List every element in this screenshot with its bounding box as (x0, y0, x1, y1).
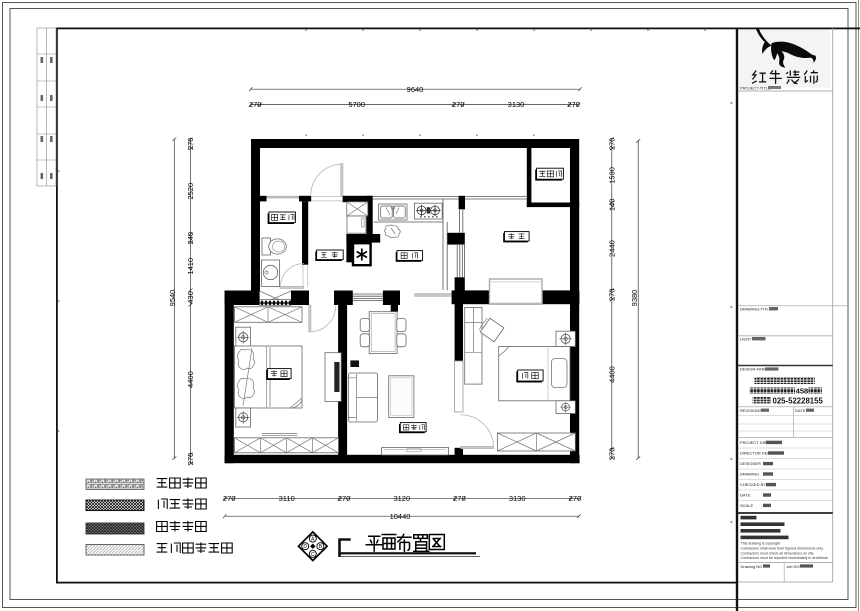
svg-text:This drawing is copyright: This drawing is copyright (741, 542, 781, 546)
svg-text:Job NO: Job NO (786, 564, 800, 569)
svg-text:2440: 2440 (607, 240, 616, 257)
svg-text:270: 270 (186, 453, 195, 466)
svg-text:9380: 9380 (630, 290, 639, 307)
svg-text:430: 430 (186, 291, 195, 304)
svg-text:270: 270 (607, 289, 616, 302)
svg-text:140: 140 (607, 199, 616, 212)
svg-text:270: 270 (607, 448, 616, 461)
svg-text:PROJECT-TITLE: PROJECT-TITLE (740, 86, 771, 91)
svg-text:3120: 3120 (393, 494, 410, 503)
svg-text:REVISIONS: REVISIONS (740, 408, 762, 413)
svg-text:270: 270 (338, 494, 351, 503)
svg-text:3130: 3130 (508, 100, 525, 109)
svg-text:9540: 9540 (168, 290, 177, 307)
svg-text:D: D (303, 544, 307, 550)
svg-text:DIRECTOR DER: DIRECTOR DER (740, 451, 770, 456)
svg-text:270: 270 (569, 494, 582, 503)
svg-text:LIENT: LIENT (740, 337, 752, 342)
svg-text:Contractors shall work from fi: Contractors shall work from figured dime… (741, 547, 824, 551)
svg-text:DATE: DATE (740, 493, 751, 498)
svg-text:3130: 3130 (509, 494, 526, 503)
svg-text:270: 270 (607, 138, 616, 151)
svg-text:270: 270 (567, 100, 580, 109)
svg-text:4400: 4400 (186, 371, 195, 388)
svg-text:Contractors must check all dim: Contractors must check all dimensions on… (741, 551, 814, 555)
svg-text:Contractors must be reported i: Contractors must be reported immediately… (741, 556, 828, 560)
svg-text:DESIGN-FIRM: DESIGN-FIRM (740, 367, 766, 372)
svg-text:C: C (311, 552, 315, 558)
svg-text:DATE: DATE (795, 408, 806, 413)
svg-text:3110: 3110 (279, 494, 295, 503)
svg-text:270: 270 (186, 138, 195, 151)
svg-text:10440: 10440 (390, 512, 411, 521)
svg-text:DRAWING: DRAWING (740, 472, 759, 477)
svg-text:025-52228155: 025-52228155 (773, 396, 824, 405)
svg-text:4400: 4400 (607, 366, 616, 383)
svg-text:270: 270 (452, 100, 465, 109)
svg-text:458: 458 (796, 387, 809, 396)
svg-text:2520: 2520 (186, 183, 195, 200)
svg-text:5700: 5700 (348, 100, 365, 109)
svg-text:9640: 9640 (407, 85, 424, 94)
svg-text:DESIGNER: DESIGNER (740, 461, 761, 466)
svg-text:Drawing NO: Drawing NO (741, 564, 763, 569)
svg-text:SCALE: SCALE (740, 503, 753, 508)
svg-text:240: 240 (186, 232, 195, 245)
svg-text:270: 270 (249, 100, 262, 109)
svg-text:1590: 1590 (607, 167, 616, 184)
svg-text:1410: 1410 (186, 258, 195, 275)
svg-text:PROJECT DIR: PROJECT DIR (740, 440, 767, 445)
svg-text:CHECKED BY: CHECKED BY (740, 482, 766, 487)
svg-text:DRAWING-TITLE: DRAWING-TITLE (740, 306, 772, 311)
svg-text:270: 270 (223, 494, 236, 503)
svg-text:270: 270 (453, 494, 466, 503)
